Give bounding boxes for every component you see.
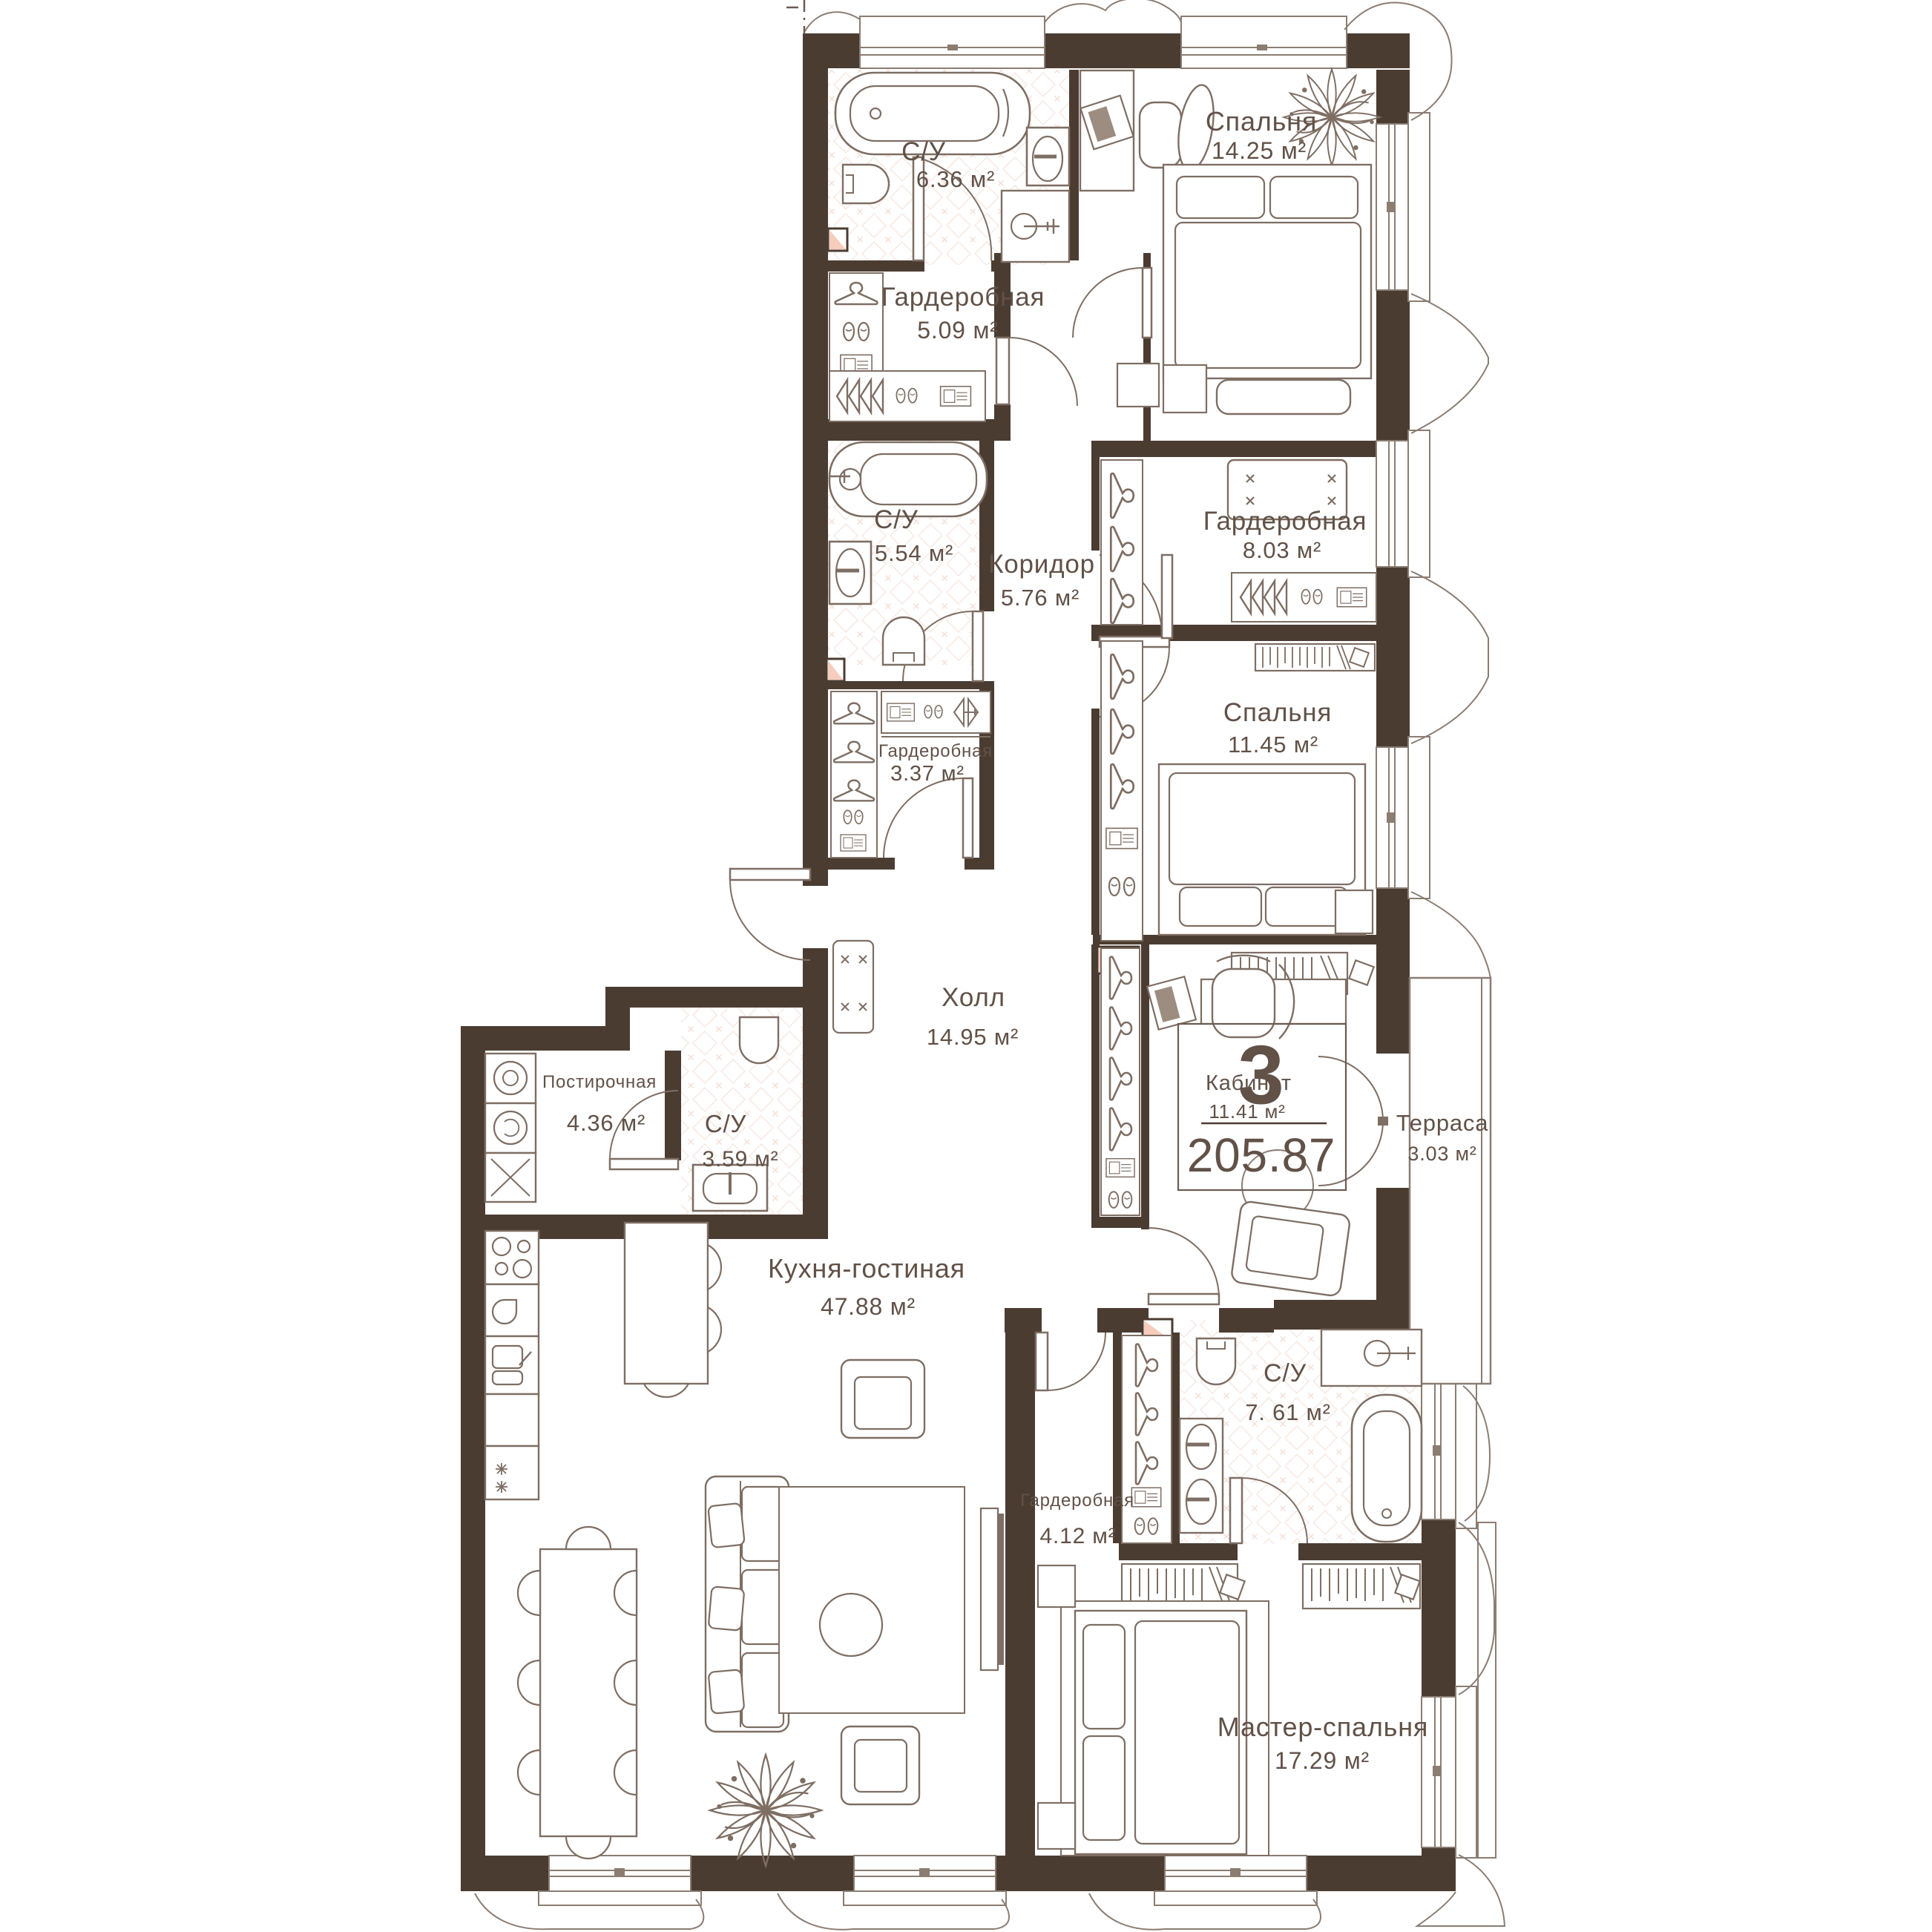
svg-text:47.88 м²: 47.88 м² xyxy=(821,1293,916,1320)
svg-text:17.29 м²: 17.29 м² xyxy=(1275,1747,1370,1774)
svg-text:4.36 м²: 4.36 м² xyxy=(567,1110,645,1136)
svg-text:Коридор: Коридор xyxy=(988,550,1095,579)
svg-text:7. 61 м²: 7. 61 м² xyxy=(1245,1399,1331,1425)
svg-text:11.45 м²: 11.45 м² xyxy=(1228,732,1318,758)
svg-text:Постирочная: Постирочная xyxy=(542,1072,657,1092)
svg-text:Холл: Холл xyxy=(942,983,1005,1012)
svg-text:3.37 м²: 3.37 м² xyxy=(890,762,965,786)
svg-text:5.54 м²: 5.54 м² xyxy=(875,540,953,566)
svg-text:14.95 м²: 14.95 м² xyxy=(927,1024,1019,1050)
svg-text:3: 3 xyxy=(1238,1028,1284,1121)
svg-text:Гардеробная: Гардеробная xyxy=(878,741,993,761)
svg-text:Спальня: Спальня xyxy=(1223,698,1332,727)
svg-text:5.76 м²: 5.76 м² xyxy=(1001,585,1080,611)
svg-text:Терраса: Терраса xyxy=(1396,1110,1489,1136)
svg-text:14.25 м²: 14.25 м² xyxy=(1212,137,1307,164)
svg-text:Гардеробная: Гардеробная xyxy=(1020,1491,1134,1511)
svg-text:Гардеробная: Гардеробная xyxy=(881,283,1045,312)
svg-text:8.03 м²: 8.03 м² xyxy=(1243,537,1321,563)
svg-text:3.03 м²: 3.03 м² xyxy=(1407,1143,1476,1165)
svg-text:Гардеробная: Гардеробная xyxy=(1203,507,1367,536)
svg-text:205.87: 205.87 xyxy=(1187,1128,1336,1182)
svg-text:Кухня-гостиная: Кухня-гостиная xyxy=(768,1253,965,1284)
svg-text:6.36 м²: 6.36 м² xyxy=(916,166,995,192)
svg-text:Мастер-спальня: Мастер-спальня xyxy=(1218,1712,1428,1742)
svg-text:С/У: С/У xyxy=(901,137,946,166)
svg-text:4.12 м²: 4.12 м² xyxy=(1040,1524,1117,1548)
svg-text:С/У: С/У xyxy=(874,505,919,534)
svg-text:3.59 м²: 3.59 м² xyxy=(703,1147,779,1172)
svg-text:Спальня: Спальня xyxy=(1206,106,1317,137)
svg-text:5.09 м²: 5.09 м² xyxy=(917,317,998,344)
svg-text:С/У: С/У xyxy=(1264,1359,1307,1387)
svg-text:С/У: С/У xyxy=(705,1110,747,1137)
